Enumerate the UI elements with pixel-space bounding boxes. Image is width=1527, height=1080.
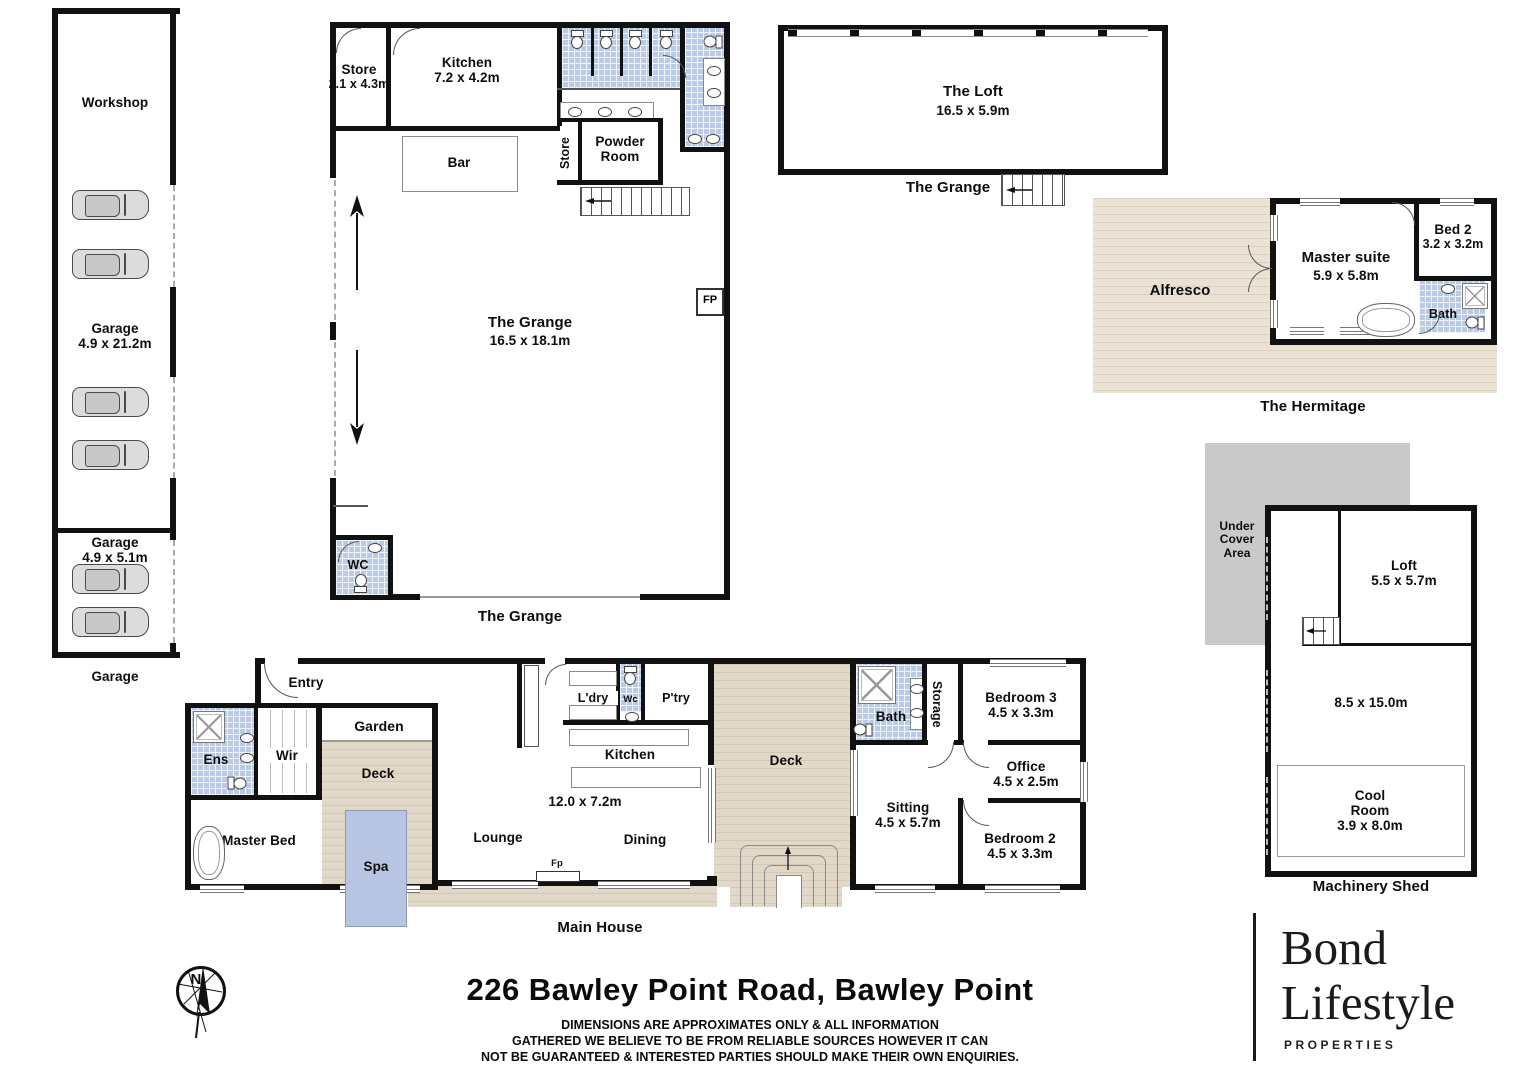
room-label-garden: Garden bbox=[339, 719, 419, 735]
room-dim-office: 4.5 x 2.5m bbox=[966, 774, 1086, 789]
room-dim-store: 2.1 x 4.3m bbox=[322, 77, 396, 91]
room-label-house-kitchen: Kitchen bbox=[580, 747, 680, 762]
wall-segment bbox=[52, 652, 180, 658]
room-label-ens: Ens bbox=[190, 752, 242, 767]
toilet-icon bbox=[854, 723, 873, 737]
wall-segment bbox=[649, 24, 652, 76]
logo-tagline: PROPERTIES bbox=[1284, 1038, 1396, 1052]
car-icon bbox=[72, 438, 150, 472]
wall-segment bbox=[922, 658, 927, 744]
room-dim-sitting: 4.5 x 5.7m bbox=[848, 815, 968, 830]
basin-icon bbox=[1441, 284, 1455, 294]
room-label-lounge: Lounge bbox=[448, 830, 548, 845]
wall-segment bbox=[557, 88, 680, 90]
wall-segment bbox=[330, 22, 336, 178]
room-label-house-bed2: Bedroom 2 bbox=[960, 831, 1080, 846]
room-dim-shed-loft: 5.5 x 5.7m bbox=[1345, 573, 1463, 588]
wall-segment bbox=[333, 505, 368, 507]
room-dim-kitchen: 7.2 x 4.2m bbox=[417, 70, 517, 85]
garage-door-opening bbox=[173, 185, 175, 287]
window-band bbox=[788, 29, 1148, 37]
shed-door-opening bbox=[1266, 670, 1268, 752]
wall-segment bbox=[620, 24, 623, 76]
building-caption-grange: The Grange bbox=[430, 609, 610, 626]
window bbox=[708, 768, 716, 843]
toilet-icon bbox=[570, 30, 584, 49]
wall-segment bbox=[185, 795, 322, 800]
window bbox=[850, 750, 858, 816]
basin-icon bbox=[628, 107, 642, 117]
shed-door-opening bbox=[1266, 537, 1268, 620]
wall-segment bbox=[517, 658, 522, 748]
stairs-arrow-icon bbox=[1006, 186, 1032, 194]
car-icon bbox=[72, 385, 150, 419]
direction-arrow-icon bbox=[348, 195, 366, 290]
laundry-bench bbox=[569, 671, 617, 686]
room-dim-master-suite: 5.9 x 5.8m bbox=[1276, 268, 1416, 283]
wall-segment bbox=[708, 658, 714, 765]
window bbox=[452, 881, 538, 889]
door-arc-icon bbox=[928, 742, 954, 768]
wall-segment bbox=[707, 876, 717, 886]
door-arc-icon bbox=[264, 663, 298, 698]
deck-steps-landing bbox=[776, 875, 802, 908]
wall-segment bbox=[316, 703, 322, 800]
page-title: 226 Bawley Point Road, Bawley Point bbox=[330, 972, 1170, 1008]
logo-name-line2: Lifestyle bbox=[1281, 978, 1455, 1027]
wall-segment bbox=[330, 126, 560, 131]
wall-segment bbox=[254, 703, 258, 800]
room-dim-bed3: 4.5 x 3.3m bbox=[962, 705, 1080, 720]
wall-segment bbox=[640, 594, 730, 600]
wall-segment bbox=[850, 740, 928, 745]
room-label-dining: Dining bbox=[595, 832, 695, 847]
wall-segment bbox=[591, 24, 594, 76]
shed-door-opening bbox=[1266, 777, 1268, 855]
wall-segment bbox=[298, 658, 545, 664]
room-label-master-suite: Master suite bbox=[1276, 250, 1416, 267]
building-caption-hermitage: The Hermitage bbox=[1240, 399, 1386, 416]
toilet-icon bbox=[704, 35, 723, 49]
room-dim-loft: 16.5 x 5.9m bbox=[873, 103, 1073, 118]
logo-divider bbox=[1253, 913, 1256, 1061]
room-label-ptry: P'try bbox=[648, 691, 704, 705]
wall-segment bbox=[52, 8, 180, 14]
car-icon bbox=[72, 188, 150, 222]
basin-icon bbox=[707, 88, 721, 98]
window bbox=[598, 881, 690, 889]
room-label-loft: The Loft bbox=[873, 84, 1073, 101]
wall-segment bbox=[988, 798, 1086, 803]
basin-icon bbox=[706, 134, 720, 144]
closet bbox=[524, 665, 539, 747]
room-label-store2: Store bbox=[558, 128, 572, 178]
wall-segment bbox=[658, 118, 663, 184]
garden-edge bbox=[322, 740, 432, 742]
shower-icon bbox=[858, 666, 896, 704]
window bbox=[1440, 198, 1474, 206]
wall-segment bbox=[724, 22, 730, 600]
logo-name-line1: Bond bbox=[1281, 923, 1387, 972]
roller-door-opening bbox=[334, 180, 336, 320]
fireplace-icon: FP bbox=[696, 288, 724, 316]
room-dim-cool-room: 3.9 x 8.0m bbox=[1320, 818, 1420, 833]
room-label-store: Store bbox=[332, 62, 386, 77]
fireplace-icon bbox=[536, 871, 580, 882]
basin-icon bbox=[240, 733, 254, 743]
window bbox=[985, 885, 1060, 893]
room-label-spa: Spa bbox=[346, 859, 406, 874]
room-label-grange-hall: The Grange bbox=[440, 315, 620, 332]
compass: N bbox=[172, 962, 232, 1042]
toilet-icon bbox=[354, 574, 368, 593]
roller-door-opening bbox=[334, 342, 336, 476]
wall-segment bbox=[641, 662, 645, 722]
room-label-cool-room: Cool Room bbox=[1335, 788, 1405, 818]
car-icon bbox=[72, 247, 150, 281]
room-label-workshop: Workshop bbox=[55, 95, 175, 110]
toilet-icon bbox=[1466, 316, 1485, 330]
toilet-icon bbox=[228, 777, 247, 791]
wall-segment bbox=[170, 643, 176, 658]
room-label-under-cover: Under Cover Area bbox=[1206, 520, 1268, 560]
room-dim-house-bed2: 4.5 x 3.3m bbox=[960, 846, 1080, 861]
garage-door-opening bbox=[173, 377, 175, 478]
basin-icon bbox=[688, 134, 702, 144]
shower-icon bbox=[1462, 283, 1488, 309]
wall-segment bbox=[557, 180, 663, 185]
building-caption-shed: Machinery Shed bbox=[1291, 879, 1451, 896]
room-label-shed-loft: Loft bbox=[1345, 558, 1463, 573]
room-label-powder: Powder Room bbox=[584, 134, 656, 164]
building-caption-loft: The Grange bbox=[878, 180, 1018, 197]
stairs-arrow-icon bbox=[585, 197, 611, 205]
room-label-bed2: Bed 2 bbox=[1415, 222, 1491, 237]
door-arc-icon bbox=[336, 28, 361, 53]
room-label-bed3: Bedroom 3 bbox=[962, 690, 1080, 705]
room-dim-living: 12.0 x 7.2m bbox=[520, 794, 650, 809]
laundry-bench bbox=[569, 705, 617, 720]
basin-icon bbox=[625, 712, 639, 722]
window bbox=[1270, 300, 1278, 328]
wall-segment bbox=[578, 118, 582, 184]
wall-segment bbox=[680, 147, 730, 152]
window bbox=[1300, 198, 1340, 206]
wall-segment bbox=[386, 22, 391, 130]
wall-segment bbox=[557, 118, 662, 122]
room-label-kitchen: Kitchen bbox=[417, 55, 517, 70]
basin-icon bbox=[568, 107, 582, 117]
car-icon bbox=[72, 605, 150, 639]
car-icon bbox=[72, 562, 150, 596]
room-dim-bed2: 3.2 x 3.2m bbox=[1412, 237, 1494, 251]
toilet-icon bbox=[599, 30, 613, 49]
basin-icon bbox=[598, 107, 612, 117]
direction-arrow-icon bbox=[348, 350, 366, 445]
building-caption-garage: Garage bbox=[55, 669, 175, 684]
window bbox=[1080, 762, 1088, 802]
room-label-deck-left: Deck bbox=[338, 766, 418, 781]
room-label-sitting: Sitting bbox=[848, 800, 968, 815]
room-label-wc2: Wc bbox=[620, 695, 641, 706]
room-dim-grange-hall: 16.5 x 18.1m bbox=[440, 333, 620, 348]
window bbox=[200, 885, 244, 893]
bathtub-icon bbox=[1357, 303, 1415, 337]
toilet-icon bbox=[623, 666, 637, 685]
room-label-deck-right: Deck bbox=[746, 753, 826, 768]
building-caption-main-house: Main House bbox=[520, 920, 680, 937]
basin-icon bbox=[910, 684, 924, 694]
disclaimer-line: NOT BE GUARANTEED & INTERESTED PARTIES S… bbox=[330, 1050, 1170, 1064]
window bbox=[990, 659, 1066, 667]
island-bench bbox=[571, 767, 701, 788]
bathtub-icon bbox=[193, 826, 225, 880]
toilet-icon bbox=[628, 30, 642, 49]
compass-north-label: N bbox=[188, 972, 204, 989]
room-label-garage1: Garage bbox=[55, 321, 175, 336]
room-label-garage2: Garage bbox=[55, 535, 175, 550]
wall-segment bbox=[388, 535, 393, 597]
toilet-icon bbox=[659, 30, 673, 49]
wall-segment bbox=[330, 322, 336, 340]
room-label-alfresco: Alfresco bbox=[1120, 283, 1240, 300]
floor-plan-canvas: Workshop Garage 4.9 x 21.2m Garage 4.9 x… bbox=[0, 0, 1527, 1080]
wall-opening bbox=[420, 596, 640, 598]
wall-segment bbox=[52, 528, 176, 533]
basin-icon bbox=[240, 753, 254, 763]
disclaimer-line: DIMENSIONS ARE APPROXIMATES ONLY & ALL I… bbox=[330, 1018, 1170, 1032]
stairs-arrow-icon bbox=[784, 846, 792, 870]
door-arc-icon bbox=[393, 28, 420, 55]
room-dim-garage1: 4.9 x 21.2m bbox=[55, 336, 175, 351]
wall-segment bbox=[432, 703, 438, 890]
disclaimer-line: GATHERED WE BELIEVE TO BE FROM RELIABLE … bbox=[330, 1034, 1170, 1048]
room-label-bar: Bar bbox=[412, 155, 506, 170]
basin-icon bbox=[368, 543, 382, 553]
kitchen-bench bbox=[569, 729, 689, 746]
door-arc-icon bbox=[545, 664, 566, 685]
wall-segment bbox=[255, 658, 261, 708]
shower-icon bbox=[193, 711, 225, 743]
basin-icon bbox=[910, 708, 924, 718]
room-label-storage: Storage bbox=[930, 668, 944, 740]
room-label-wir: Wir bbox=[262, 748, 312, 763]
window bbox=[1290, 327, 1324, 335]
room-dim-shed-main: 8.5 x 15.0m bbox=[1300, 695, 1442, 710]
fireplace-label: Fp bbox=[546, 859, 568, 870]
window bbox=[1270, 215, 1278, 241]
basin-icon bbox=[707, 66, 721, 76]
window bbox=[875, 885, 935, 893]
wall-segment bbox=[988, 740, 1086, 745]
stairs-arrow-icon bbox=[1306, 627, 1326, 635]
room-label-ldry: L'dry bbox=[568, 691, 618, 705]
